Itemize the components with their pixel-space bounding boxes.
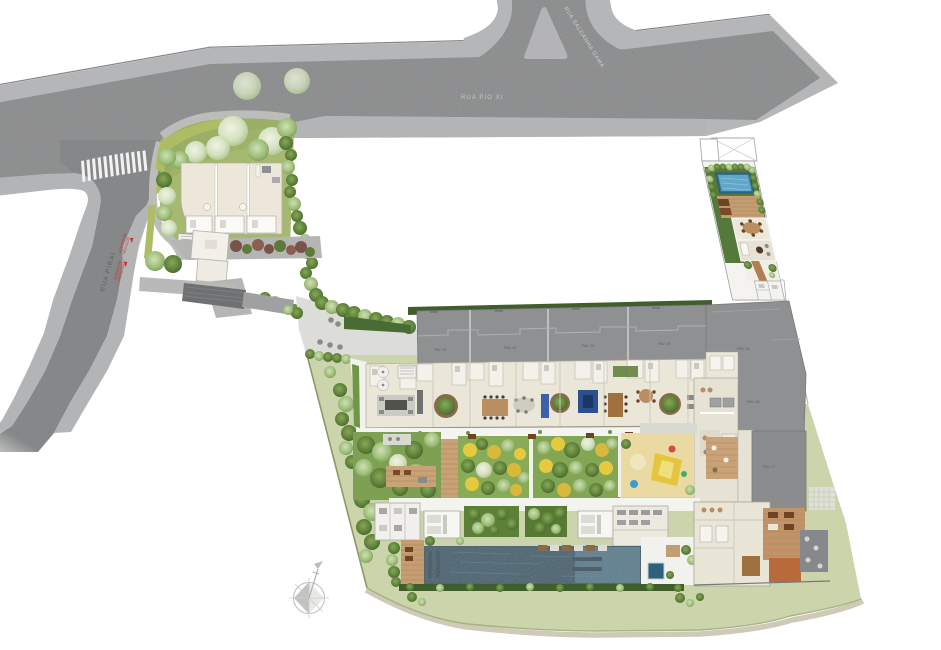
svg-text:PAV. 05: PAV. 05 xyxy=(737,347,749,351)
svg-text:PAV. 03: PAV. 03 xyxy=(582,344,594,348)
svg-text:PAV. 07: PAV. 07 xyxy=(763,465,775,469)
svg-text:PAV. 04: PAV. 04 xyxy=(658,342,670,346)
svg-text:PAV. 06: PAV. 06 xyxy=(747,400,759,404)
svg-text:PAV. 02: PAV. 02 xyxy=(504,346,516,350)
svg-text:PAV. 01: PAV. 01 xyxy=(434,348,446,352)
svg-text:RUA PIO XI: RUA PIO XI xyxy=(461,95,504,101)
